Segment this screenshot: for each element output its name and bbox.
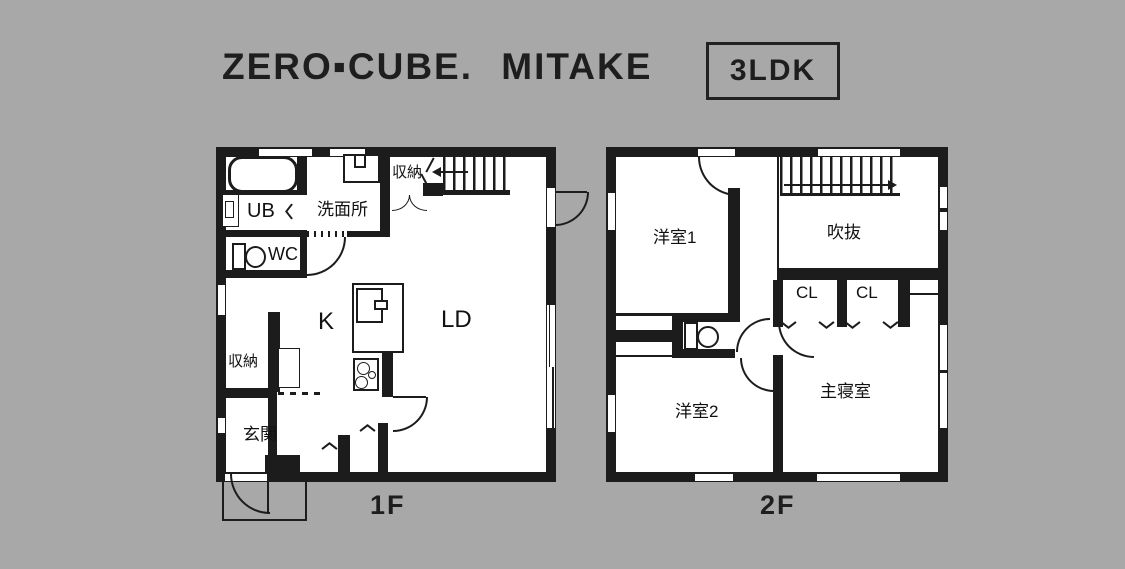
toilet-bowl [245, 246, 266, 268]
window [608, 395, 615, 432]
door-arc [307, 237, 346, 276]
floorplan-2f: 洋室1 吹抜 CL CL 主寝室 洋室2 [606, 147, 948, 482]
door-arc [409, 195, 427, 211]
wall [226, 230, 307, 237]
folding-door-mark [883, 320, 897, 330]
sink-faucet [374, 300, 388, 310]
room-label-room2: 洋室2 [675, 397, 718, 422]
stairs [780, 157, 900, 193]
folding-door-mark [845, 320, 859, 330]
wall [382, 347, 393, 397]
stair-arrow [784, 184, 888, 186]
window [695, 474, 733, 481]
folding-door-mark [781, 320, 795, 330]
layout-type-badge: 3LDK [706, 42, 840, 100]
bathtub [228, 156, 298, 193]
door-opening [698, 149, 735, 156]
sliding-door-dashed [278, 392, 320, 395]
bath-vanity-detail [225, 201, 234, 218]
door-arc [392, 195, 410, 211]
stove-burner [355, 376, 368, 389]
room-label-ub: UB [247, 200, 275, 223]
room-label-wc: WC [268, 244, 298, 265]
folding-door-mark [360, 423, 374, 433]
room-label-closet2: CL [856, 283, 878, 303]
toilet-tank [232, 243, 246, 270]
wall [606, 330, 672, 342]
room-label-kitchen: K [318, 308, 334, 336]
window [218, 418, 225, 433]
wall [898, 280, 910, 327]
window [817, 474, 900, 481]
window [940, 187, 947, 208]
door-arc [736, 318, 770, 352]
door-arc [698, 157, 737, 196]
door-opening [547, 188, 555, 227]
floor-label-2f: 2F [760, 490, 796, 521]
stair-arrow-head [432, 167, 441, 177]
room-label-storage-top: 収納 [392, 161, 422, 182]
wall [672, 313, 683, 358]
wall [728, 188, 740, 322]
void-boundary-line [777, 157, 779, 268]
toilet-bowl [697, 326, 719, 348]
wall [378, 423, 388, 472]
room-label-living: LD [441, 306, 472, 334]
door-arc [740, 358, 774, 392]
door-arc [555, 192, 589, 226]
window [940, 325, 947, 370]
wall [347, 231, 390, 237]
wall [777, 268, 938, 280]
stair-arrow-head [888, 180, 897, 190]
room-label-entrance: 玄関 [243, 420, 277, 445]
window [218, 285, 225, 315]
window-pane-line [549, 305, 551, 367]
wall [380, 157, 390, 237]
floorplan-canvas: ZERO▪CUBE. MITAKE 3LDK [0, 0, 1125, 569]
entrance-porch [222, 481, 307, 521]
stairs [443, 157, 510, 190]
shelf-line [616, 313, 672, 316]
window [940, 373, 947, 428]
shelf-line [616, 355, 672, 357]
room-label-room1: 洋室1 [653, 223, 696, 248]
window [940, 212, 947, 230]
wall [443, 190, 510, 195]
stair-edge [780, 193, 900, 196]
wall [338, 435, 350, 472]
shoe-cabinet [278, 348, 300, 388]
floorplan-1f: UB 洗面所 収納 WC K LD 収納 玄関 [216, 147, 556, 482]
wall [773, 355, 783, 472]
wall [226, 270, 307, 278]
folding-door-mark [284, 205, 294, 219]
stove-burner-small [368, 371, 376, 379]
room-label-void: 吹抜 [827, 218, 861, 243]
shelf-line [910, 293, 938, 295]
window-pane-line [552, 367, 554, 428]
room-label-master: 主寝室 [820, 377, 871, 402]
wall [297, 157, 307, 195]
window [608, 193, 615, 230]
room-label-closet1: CL [796, 283, 818, 303]
floor-label-1f: 1F [370, 490, 406, 521]
folding-door-mark [322, 441, 336, 451]
wall [216, 388, 273, 398]
toilet-tank [684, 322, 698, 350]
folding-door-mark [819, 320, 833, 330]
door-arc [393, 397, 428, 432]
wall [265, 455, 300, 472]
window [259, 149, 312, 156]
room-label-storage-bottom: 収納 [228, 350, 258, 371]
window [818, 149, 900, 156]
page-title: ZERO▪CUBE. MITAKE [222, 46, 652, 88]
room-label-washroom: 洗面所 [317, 195, 368, 220]
washbasin-faucet [354, 154, 366, 168]
stair-arrow [440, 171, 468, 173]
